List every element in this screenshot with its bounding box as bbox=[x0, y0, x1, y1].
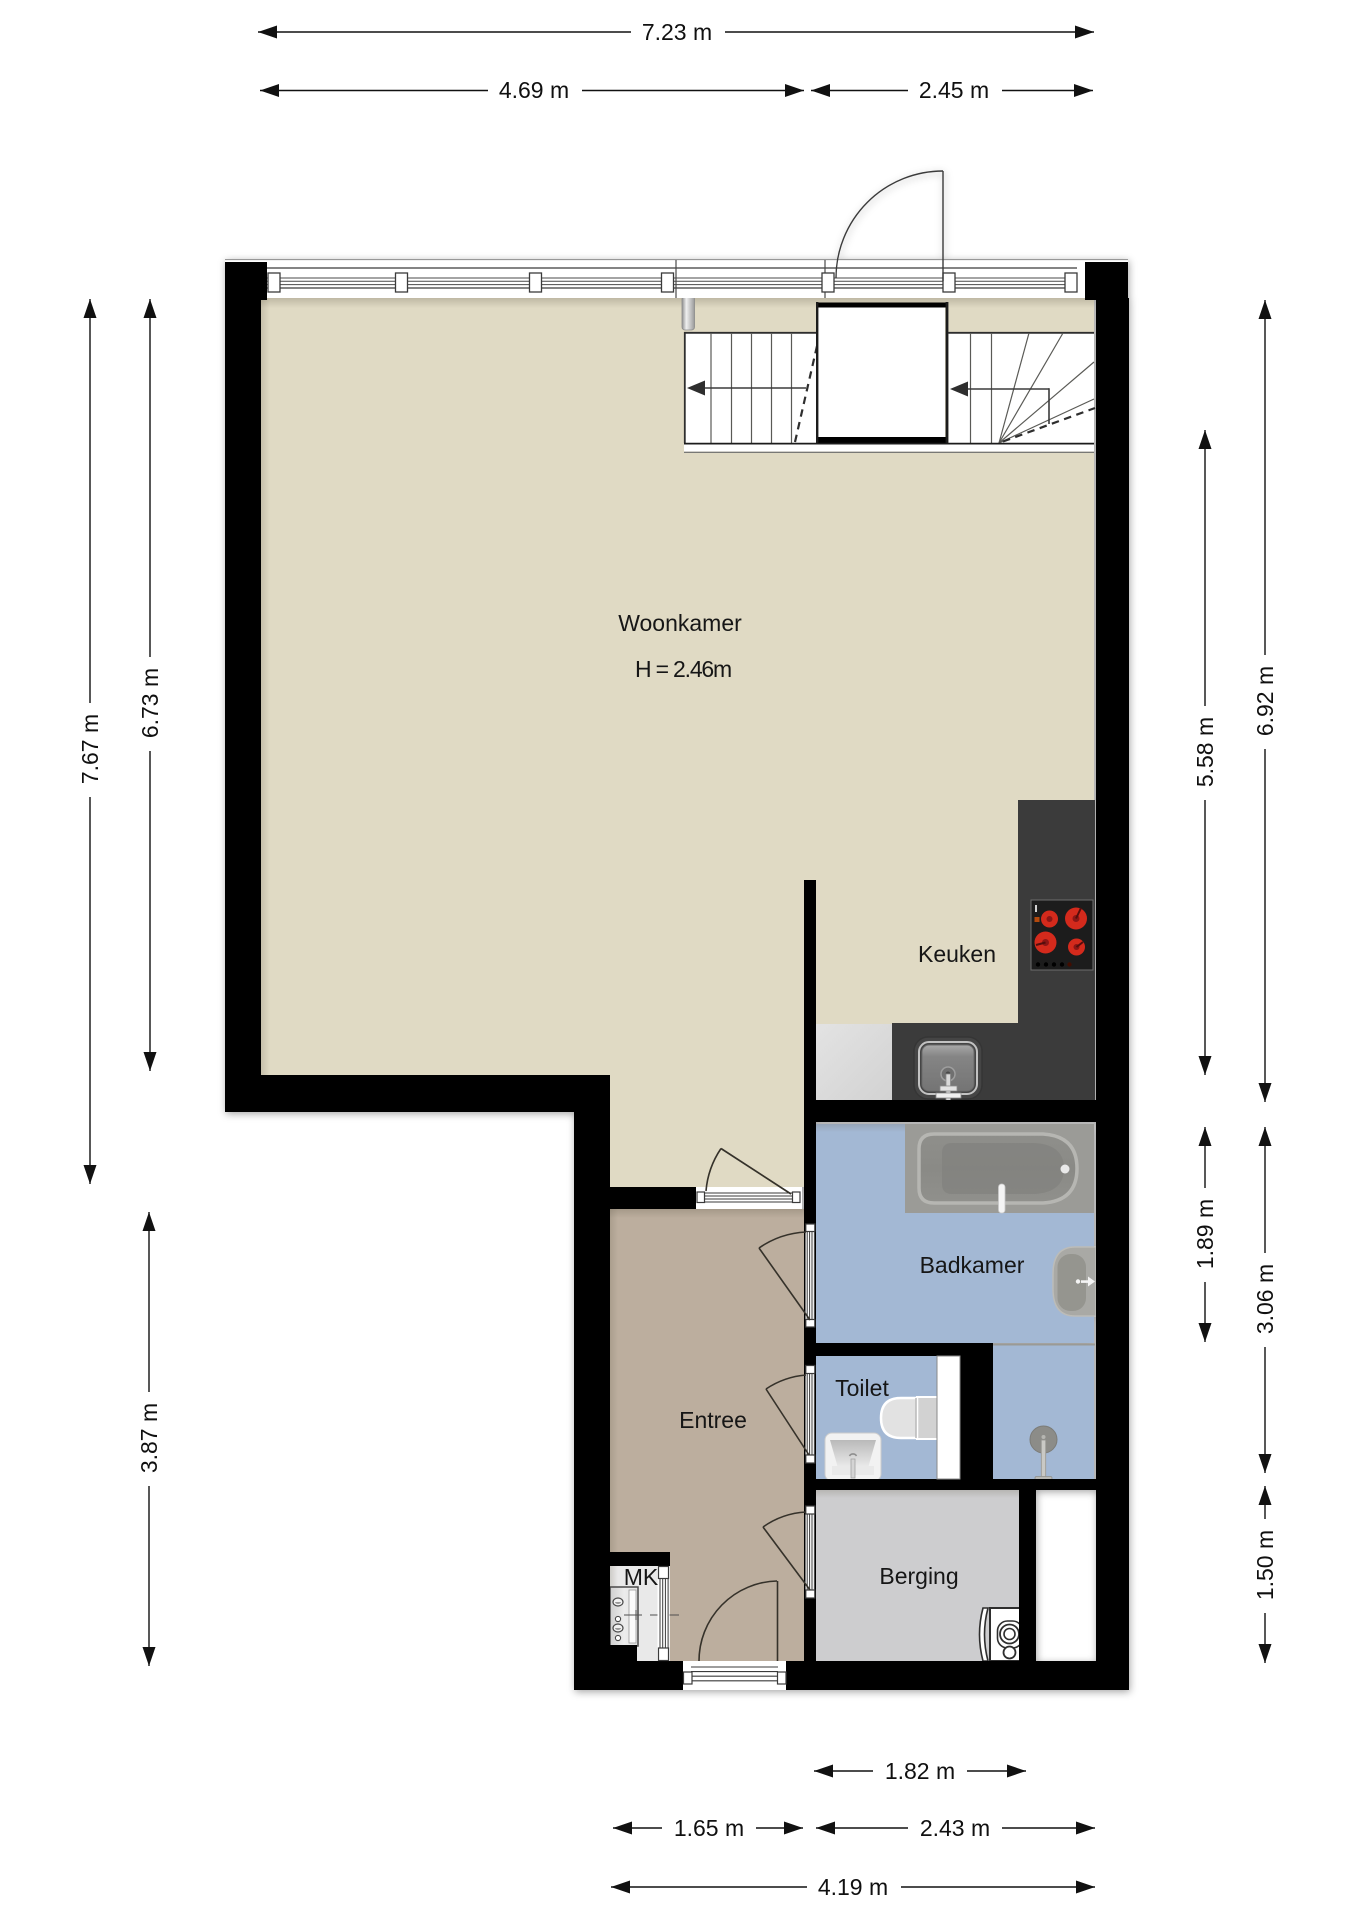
svg-text:MK: MK bbox=[624, 1564, 659, 1590]
svg-text:1.89 m: 1.89 m bbox=[1192, 1199, 1218, 1269]
svg-text:6.73 m: 6.73 m bbox=[137, 668, 163, 738]
svg-text:1.82 m: 1.82 m bbox=[885, 1758, 955, 1784]
svg-text:1.50 m: 1.50 m bbox=[1252, 1530, 1278, 1600]
svg-text:6.92 m: 6.92 m bbox=[1252, 666, 1278, 736]
svg-text:4.19 m: 4.19 m bbox=[818, 1874, 888, 1900]
svg-text:1.65 m: 1.65 m bbox=[674, 1815, 744, 1841]
svg-text:Keuken: Keuken bbox=[918, 941, 996, 967]
svg-text:3.87 m: 3.87 m bbox=[136, 1403, 162, 1473]
svg-text:5.58 m: 5.58 m bbox=[1192, 717, 1218, 787]
svg-text:Woonkamer: Woonkamer bbox=[618, 610, 742, 636]
svg-text:3.06 m: 3.06 m bbox=[1252, 1264, 1278, 1334]
svg-text:Toilet: Toilet bbox=[835, 1375, 889, 1401]
svg-text:2.43 m: 2.43 m bbox=[920, 1815, 990, 1841]
svg-text:2.45 m: 2.45 m bbox=[919, 77, 989, 103]
svg-text:H = 2.46m: H = 2.46m bbox=[635, 656, 731, 682]
svg-text:Badkamer: Badkamer bbox=[920, 1252, 1025, 1278]
svg-text:Entree: Entree bbox=[679, 1407, 747, 1433]
svg-text:Berging: Berging bbox=[879, 1563, 958, 1589]
svg-text:7.23 m: 7.23 m bbox=[642, 19, 712, 45]
svg-text:7.67 m: 7.67 m bbox=[77, 714, 103, 784]
svg-text:4.69 m: 4.69 m bbox=[499, 77, 569, 103]
